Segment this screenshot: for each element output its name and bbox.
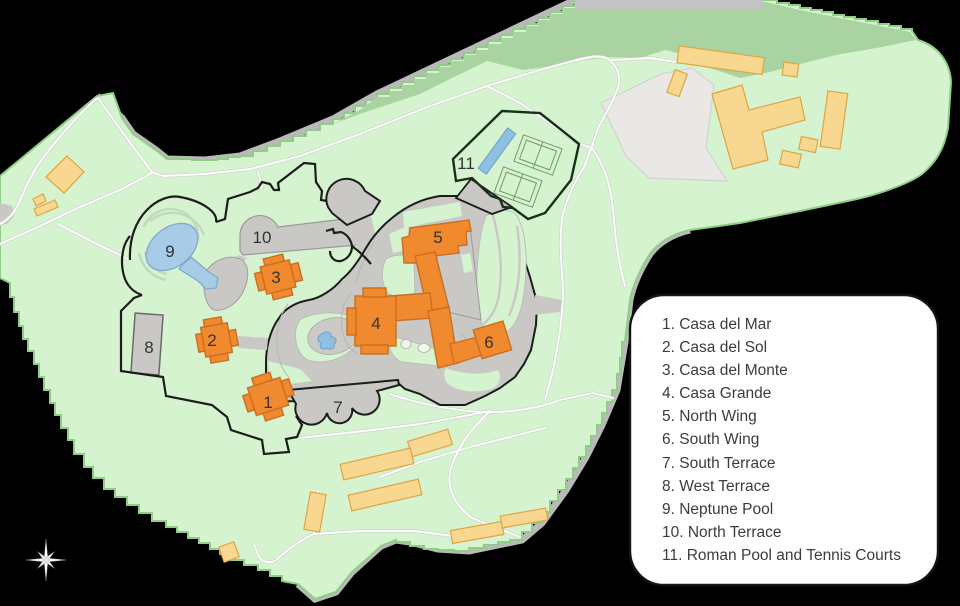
- svg-text:4: 4: [371, 314, 380, 333]
- svg-text:6. South Wing: 6. South Wing: [662, 431, 759, 448]
- svg-text:2: 2: [207, 331, 216, 350]
- svg-text:11. Roman Pool and Tennis Cour: 11. Roman Pool and Tennis Courts: [662, 547, 901, 564]
- svg-text:9: 9: [165, 242, 174, 261]
- svg-text:1: 1: [263, 393, 272, 412]
- svg-text:10. North Terrace: 10. North Terrace: [662, 524, 781, 541]
- svg-text:1. Casa del Mar: 1. Casa del Mar: [662, 316, 771, 333]
- svg-text:7: 7: [333, 398, 342, 417]
- svg-text:10: 10: [253, 228, 272, 247]
- svg-text:5. North Wing: 5. North Wing: [662, 408, 757, 425]
- svg-text:11: 11: [457, 154, 475, 173]
- svg-text:5: 5: [433, 228, 442, 247]
- svg-text:8: 8: [144, 338, 153, 357]
- svg-text:6: 6: [484, 333, 493, 352]
- svg-text:9. Neptune Pool: 9. Neptune Pool: [662, 501, 773, 518]
- svg-text:8. West Terrace: 8. West Terrace: [662, 478, 770, 495]
- svg-text:3: 3: [271, 268, 280, 287]
- svg-text:4. Casa Grande: 4. Casa Grande: [662, 385, 771, 402]
- svg-text:7. South Terrace: 7. South Terrace: [662, 455, 775, 472]
- svg-text:3. Casa del Monte: 3. Casa del Monte: [662, 362, 788, 379]
- svg-text:2. Casa del Sol: 2. Casa del Sol: [662, 339, 767, 356]
